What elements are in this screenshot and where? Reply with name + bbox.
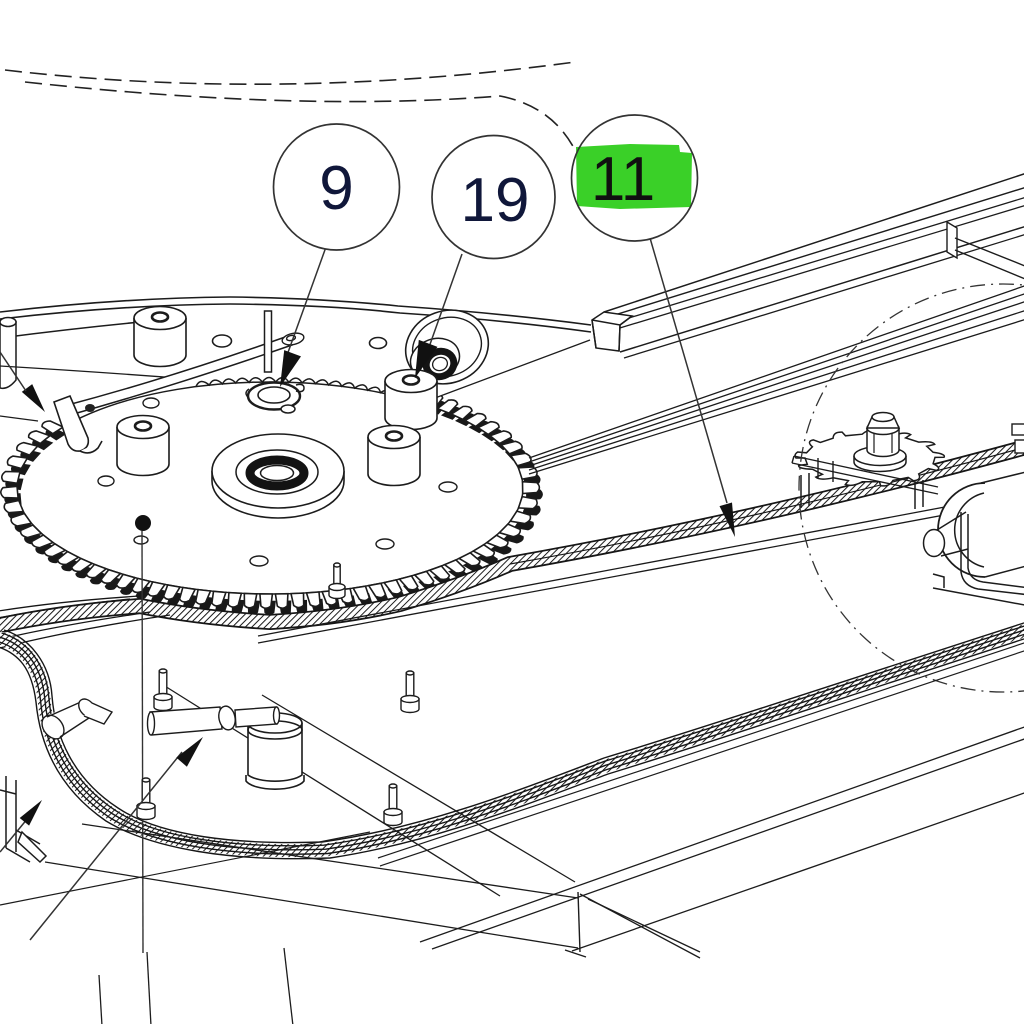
svg-text:19: 19 [461, 166, 530, 235]
svg-text:11: 11 [591, 145, 655, 214]
svg-text:9: 9 [319, 154, 353, 223]
